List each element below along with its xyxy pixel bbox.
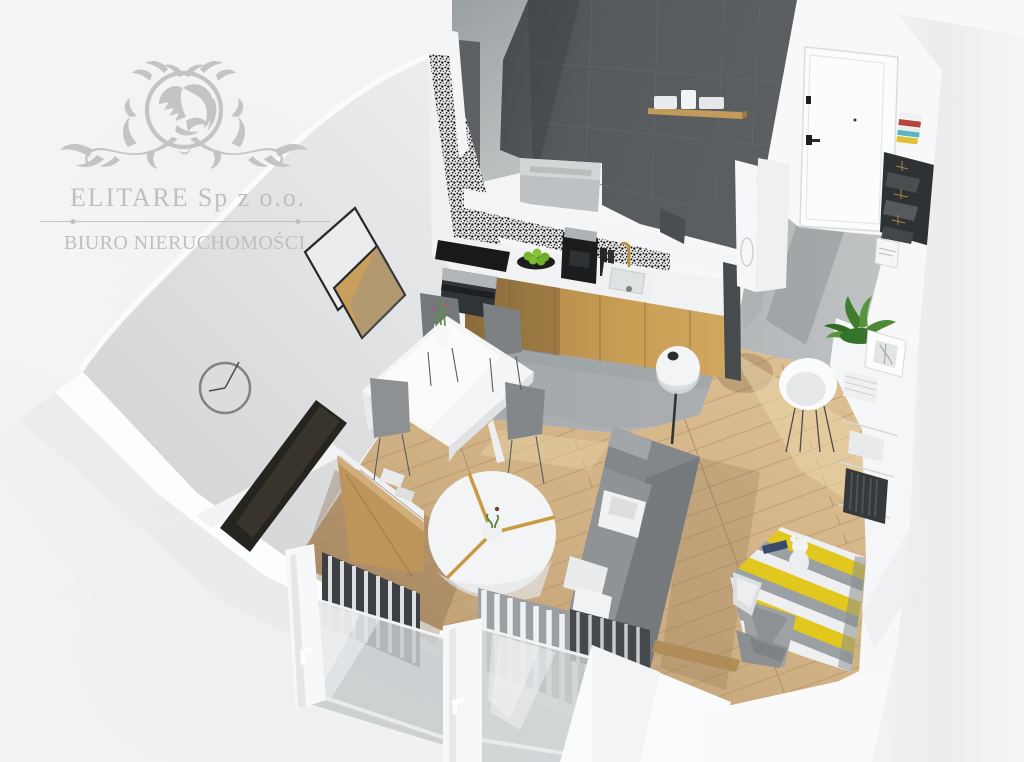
svg-text:ELITARE Sp z o.o.: ELITARE Sp z o.o.	[70, 183, 306, 212]
svg-text:BIURO NIERUCHOMOŚCI: BIURO NIERUCHOMOŚCI	[64, 230, 306, 254]
